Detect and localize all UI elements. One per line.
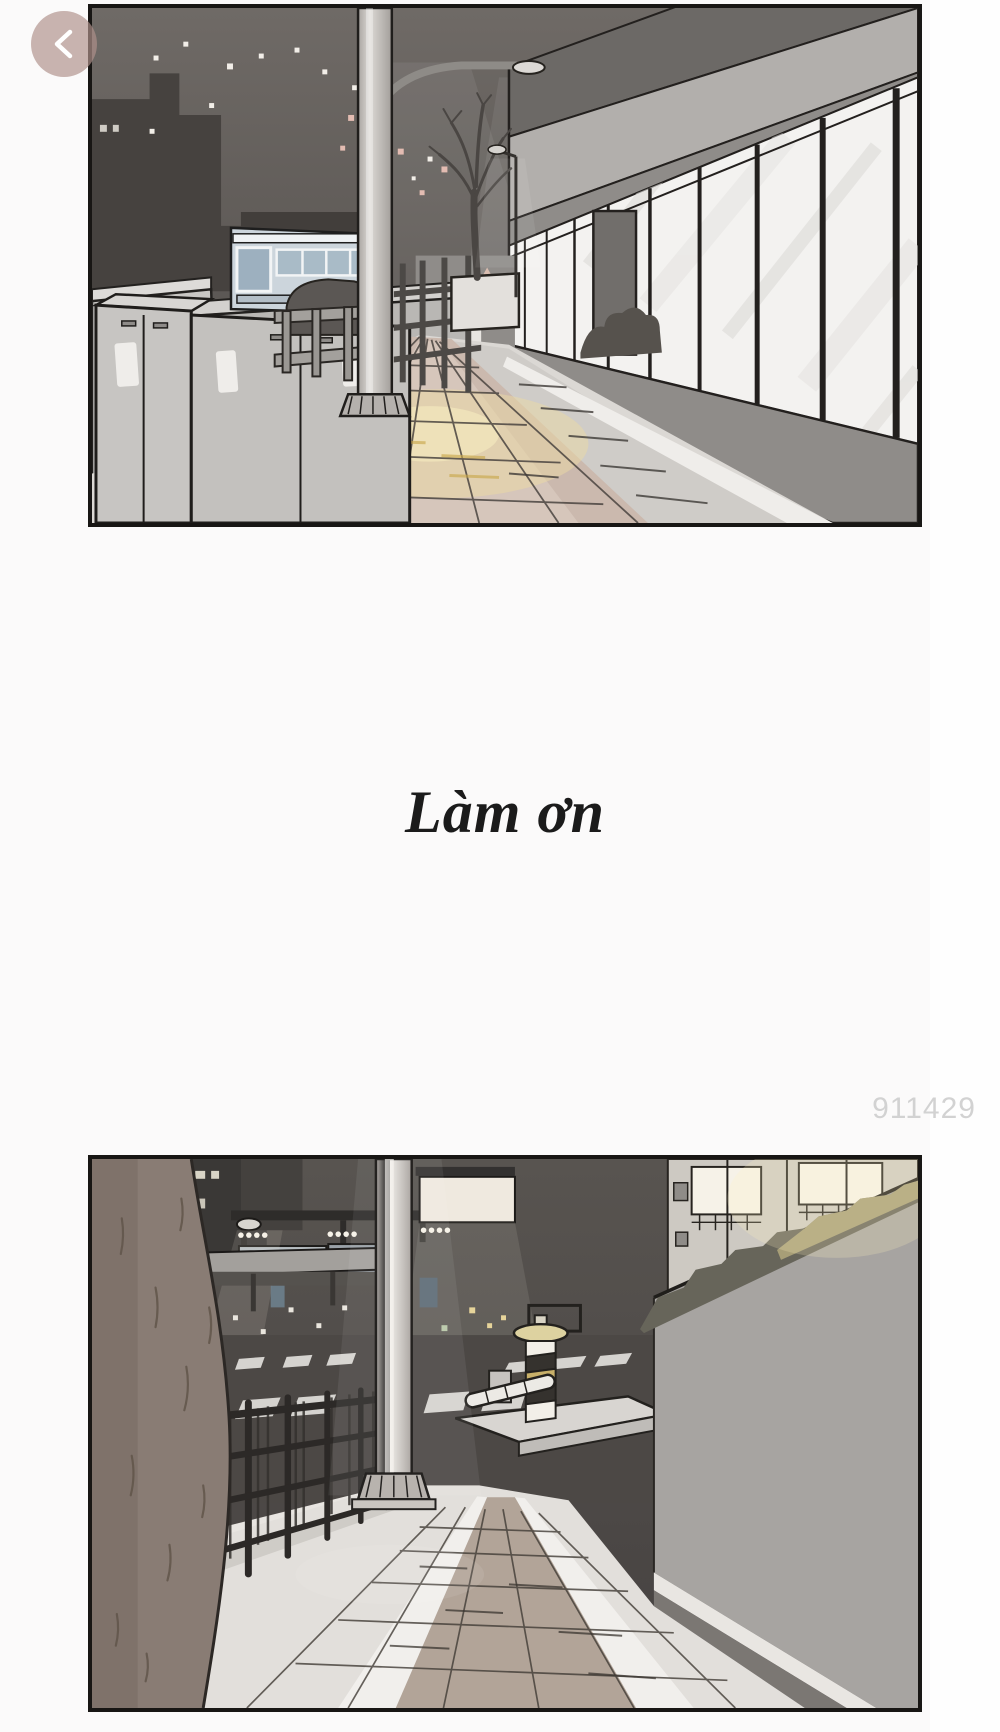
watermark-number: 911429 — [872, 1092, 976, 1126]
back-button[interactable] — [31, 11, 97, 77]
caption-text: Làm ơn — [405, 779, 605, 845]
comic-reader-page: Làm ơn — [0, 0, 1000, 1732]
comic-caption: Làm ơn — [88, 778, 922, 847]
chevron-left-icon — [51, 28, 77, 60]
comic-panel-1 — [88, 4, 922, 527]
webtoon-image-area: Làm ơn — [0, 0, 930, 1732]
panel-1-illustration — [92, 8, 918, 523]
panel-2-illustration — [92, 1159, 918, 1708]
comic-panel-2 — [88, 1155, 922, 1712]
